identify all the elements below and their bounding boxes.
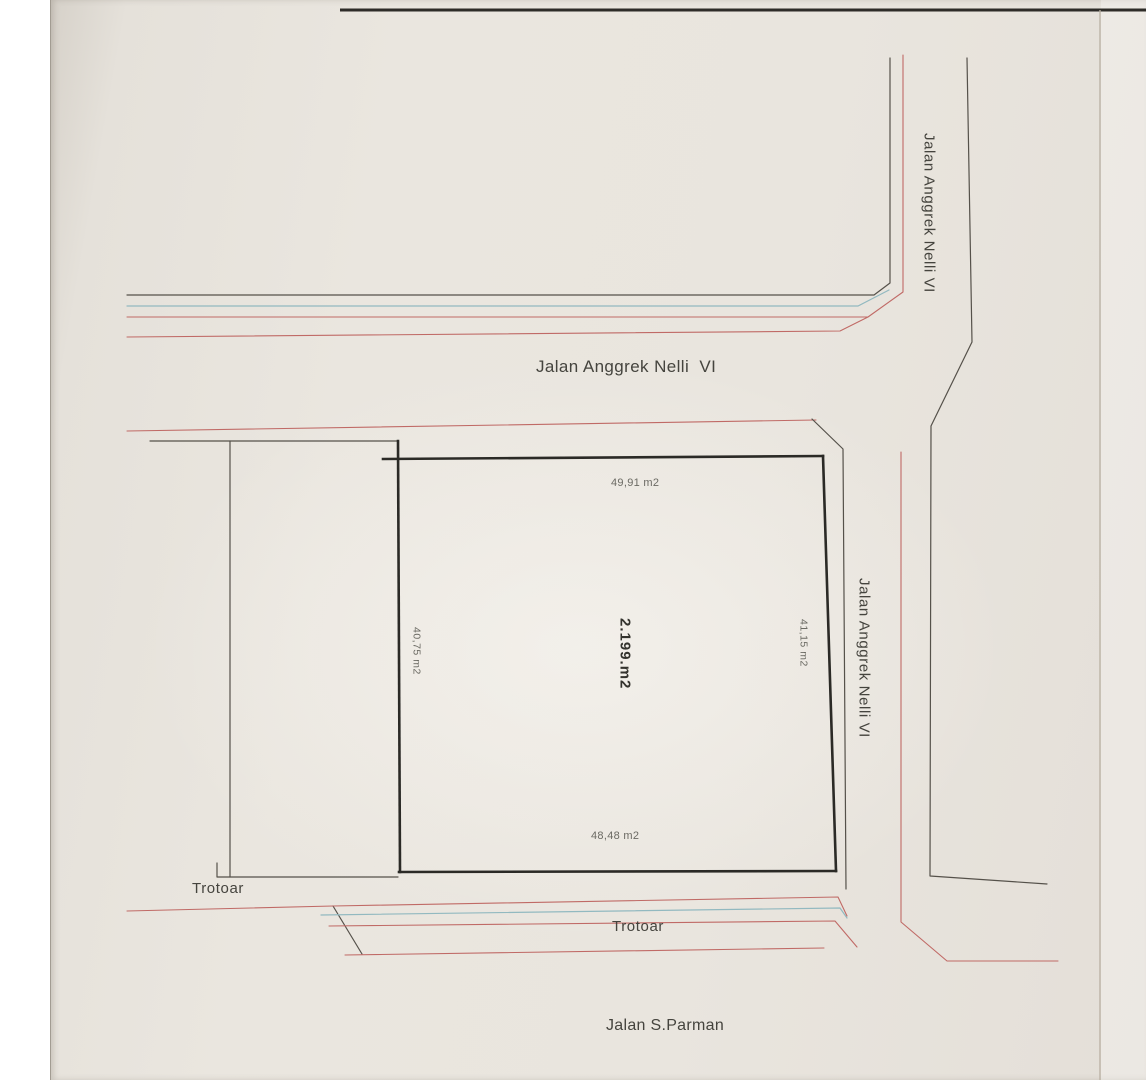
site-plan-drawing: Jalan Anggrek Nelli VI Jalan Anggrek Nel…	[0, 0, 1146, 1080]
street-label-right-vertical: Jalan Anggrek Nelli VI	[855, 578, 872, 738]
parcel-dim-right: 41,15 m2	[797, 619, 809, 667]
sidewalk-mid-red-line	[329, 921, 857, 947]
street-label-bottom: Jalan S.Parman	[606, 1017, 724, 1035]
street-right-outer-dark-line	[930, 58, 1047, 884]
parcel-dim-top: 49,91 m2	[611, 477, 659, 489]
parcel-total-area: 2.199.m2	[616, 618, 633, 689]
scanned-site-plan: Jalan Anggrek Nelli VI Jalan Anggrek Nel…	[0, 0, 1146, 1080]
parcel-dim-bottom: 48,48 m2	[591, 830, 639, 842]
street-label-horizontal: Jalan Anggrek Nelli VI	[536, 358, 716, 377]
survey-linework	[0, 0, 1146, 1080]
sidewalk-label-left: Trotoar	[192, 881, 244, 898]
street-right-red-line	[901, 452, 1058, 961]
street-top-blue-line	[127, 290, 889, 306]
sidewalk-left-red-line	[127, 906, 333, 911]
sidewalk-label-bottom: Trotoar	[612, 919, 664, 936]
sidewalk-blue-line	[321, 908, 847, 918]
parcel-dim-left: 40,75 m2	[410, 627, 422, 675]
parcel-left-edge	[398, 441, 400, 872]
street-top-red-line-2	[127, 317, 868, 337]
parcel-right-edge	[823, 456, 836, 871]
sidewalk-top-red-line	[333, 897, 847, 916]
plot-top-red-line	[127, 420, 816, 431]
street-label-top-vertical: Jalan Anggrek Nelli VI	[920, 133, 937, 293]
sidewalk-low-red-line	[345, 948, 824, 955]
left-parcel-bottom-edge	[217, 863, 398, 877]
parcel-bottom-edge	[399, 871, 836, 872]
parcel-top-edge	[383, 456, 823, 459]
street-top-dark-line	[127, 58, 890, 295]
street-top-red-line	[127, 55, 903, 317]
sidewalk-diagonal-line	[333, 906, 362, 954]
